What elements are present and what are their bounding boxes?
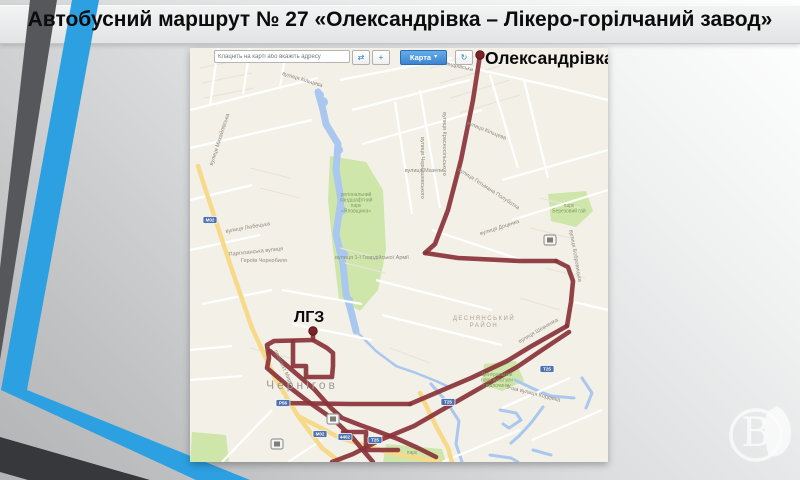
pond <box>335 146 343 154</box>
street-label: вулиця 1-ї Гвардійської Армії <box>335 254 409 261</box>
map-layer-label: Карта <box>410 51 431 64</box>
presentation-slide: Автобусний маршрут № 27 «Олександрівка –… <box>0 0 800 480</box>
map-layer-dropdown[interactable]: Карта ▾ <box>400 50 447 65</box>
road-shield: 4402 <box>338 434 352 441</box>
stripe-band <box>0 0 57 360</box>
route-map-canvas[interactable]: М02Р56Т25М024402Т25Т25вулиця Олександрів… <box>190 48 608 462</box>
park-label: регіональнийландшафтнийпарк«Яловщина» <box>340 191 373 215</box>
map-search-input[interactable] <box>214 50 350 63</box>
street-label: вулиця Красносільського <box>441 112 447 176</box>
park-area <box>190 432 229 462</box>
stripe-band <box>0 437 150 480</box>
road-shield-number: М02 <box>206 218 215 223</box>
chevron-down-icon: ▾ <box>434 51 437 64</box>
bus-route-segment <box>283 403 410 404</box>
road-shield-number: Т25 <box>543 367 551 372</box>
slide-title: Автобусний маршрут № 27 «Олександрівка –… <box>0 8 800 32</box>
stripe-band <box>1 0 99 390</box>
park-label: Центральнийпарк культуриі відпочинку <box>481 371 513 389</box>
bus-stop-glyph <box>274 442 280 447</box>
road-shield: Т25 <box>368 437 382 444</box>
street-label: Героїв Чорнобиля <box>241 258 287 264</box>
bus-stop-glyph <box>547 238 553 243</box>
road-shield: Т25 <box>540 366 554 373</box>
route-start-label: Олександрівка <box>485 48 608 69</box>
refresh-map-button[interactable]: ↻ <box>455 50 473 65</box>
bus-stop-icon <box>544 235 556 245</box>
route-end-label: ЛГЗ <box>294 309 324 327</box>
road-shield: Т25 <box>441 399 455 406</box>
pond <box>316 91 324 99</box>
channel-watermark-logo: В <box>718 396 800 474</box>
pan-icon: + <box>379 53 384 62</box>
road-shield: М02 <box>313 431 327 438</box>
city-label: Чернігов <box>266 378 338 392</box>
watermark-letter: В <box>740 410 772 456</box>
map-toolbar: ⇄ + Карта ▾ ↻ <box>214 50 473 65</box>
road-shield-number: 4402 <box>340 435 351 440</box>
road-shield: Р56 <box>276 400 290 407</box>
park-label: парк <box>407 450 418 456</box>
map-graphics: М02Р56Т25М024402Т25Т25вулиця Олександрів… <box>190 48 608 462</box>
road-shield-number: Т25 <box>444 400 452 405</box>
route-endpoint-dot <box>476 51 484 59</box>
road-shield-number: М02 <box>316 432 325 437</box>
route-endpoint-dot <box>309 327 317 335</box>
refresh-icon: ↻ <box>461 53 468 62</box>
bus-stop-glyph <box>330 417 336 422</box>
road-shield-number: Т25 <box>371 438 379 443</box>
street-label: вулиця Мазепи <box>405 168 444 174</box>
road-shield-number: Р56 <box>279 401 288 406</box>
swap-icon: ⇄ <box>358 53 365 62</box>
bus-stop-icon <box>271 439 283 449</box>
road-shield: М02 <box>203 217 217 224</box>
bus-stop-icon <box>327 414 339 424</box>
pan-mode-button[interactable]: + <box>372 50 390 65</box>
swap-directions-button[interactable]: ⇄ <box>352 50 370 65</box>
